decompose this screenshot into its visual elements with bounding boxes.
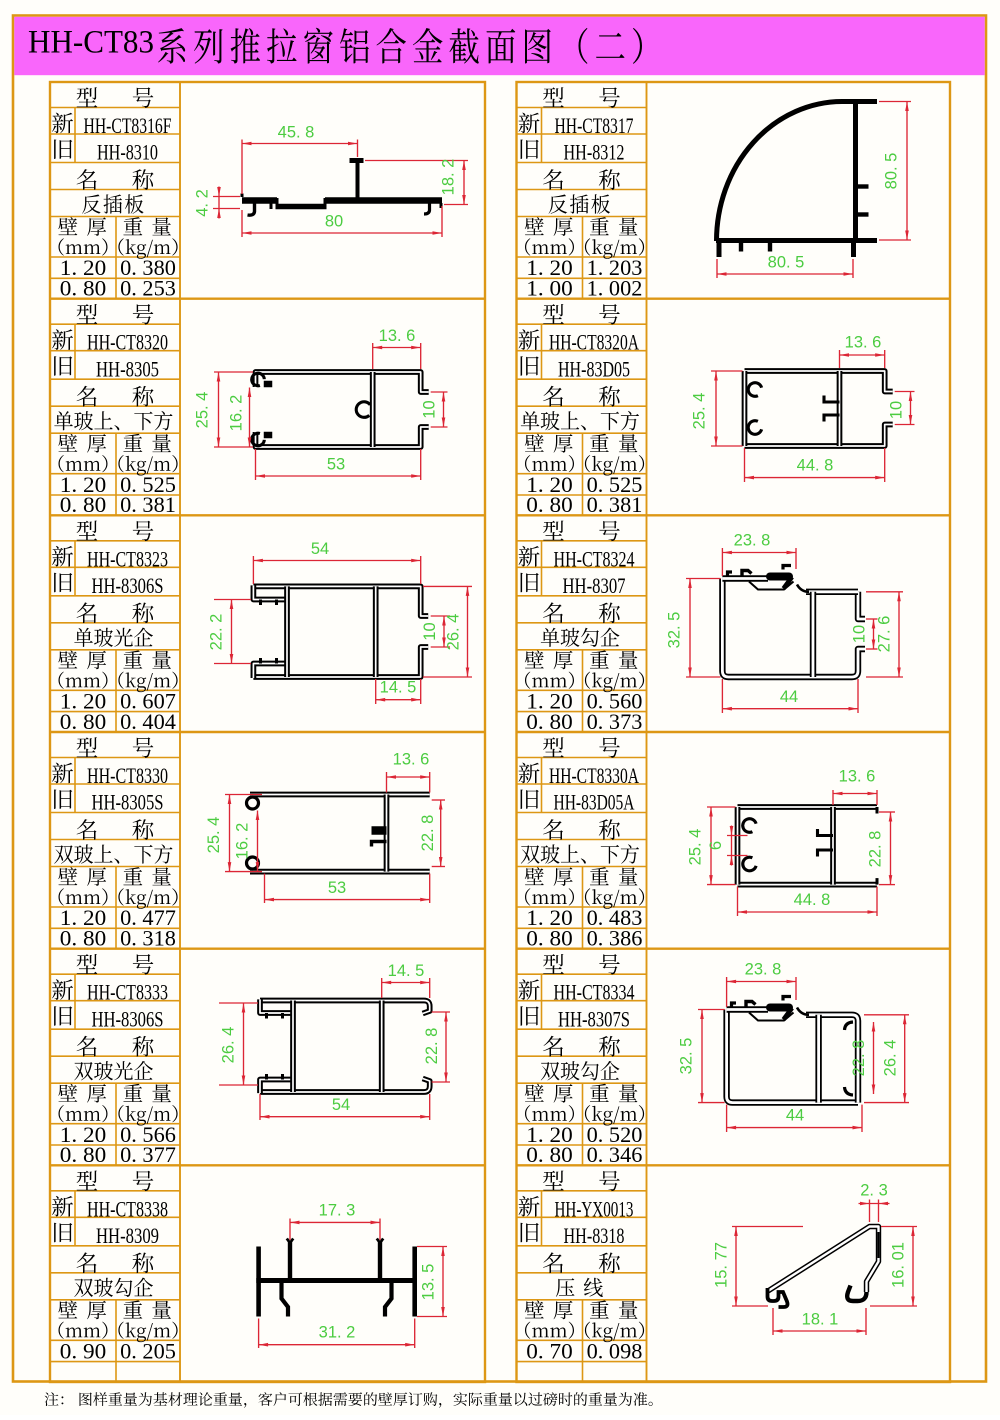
svg-text:23. 8: 23. 8 bbox=[734, 532, 771, 550]
svg-text:0. 80: 0. 80 bbox=[60, 926, 107, 951]
svg-text:10: 10 bbox=[421, 622, 439, 640]
svg-text:80. 5: 80. 5 bbox=[883, 153, 901, 190]
svg-text:HH-CT8334: HH-CT8334 bbox=[554, 980, 635, 1005]
svg-text:HH-8310: HH-8310 bbox=[97, 140, 158, 165]
svg-text:25. 4: 25. 4 bbox=[687, 829, 705, 866]
svg-text:10: 10 bbox=[888, 401, 906, 419]
svg-text:22. 8: 22. 8 bbox=[423, 1028, 441, 1065]
svg-text:0. 373: 0. 373 bbox=[587, 709, 643, 734]
svg-text:23. 8: 23. 8 bbox=[745, 961, 782, 979]
svg-text:22. 8: 22. 8 bbox=[419, 815, 437, 852]
svg-text:HH-8306S: HH-8306S bbox=[92, 573, 164, 598]
svg-text:HH-CT8320: HH-CT8320 bbox=[87, 330, 168, 355]
svg-text:32. 5: 32. 5 bbox=[678, 1038, 696, 1075]
svg-text:18. 1: 18. 1 bbox=[802, 1311, 839, 1329]
svg-text:0. 404: 0. 404 bbox=[120, 709, 176, 734]
svg-text:45. 8: 45. 8 bbox=[278, 124, 315, 142]
svg-text:HH-CT8330A: HH-CT8330A bbox=[549, 763, 639, 788]
svg-text:0. 80: 0. 80 bbox=[60, 709, 107, 734]
svg-text:44. 8: 44. 8 bbox=[794, 891, 831, 909]
svg-text:0. 098: 0. 098 bbox=[587, 1338, 643, 1363]
svg-text:1. 002: 1. 002 bbox=[587, 276, 643, 301]
svg-text:HH-83D05A: HH-83D05A bbox=[554, 790, 635, 815]
svg-text:14. 5: 14. 5 bbox=[380, 679, 417, 697]
svg-text:16. 2: 16. 2 bbox=[234, 823, 252, 860]
svg-text:HH-8306S: HH-8306S bbox=[92, 1006, 164, 1031]
svg-text:53: 53 bbox=[327, 456, 345, 474]
svg-text:6: 6 bbox=[707, 841, 725, 850]
svg-text:44: 44 bbox=[780, 688, 798, 706]
svg-text:18. 2: 18. 2 bbox=[440, 159, 458, 196]
svg-text:HH-YX0013: HH-YX0013 bbox=[555, 1196, 634, 1221]
svg-text:25. 4: 25. 4 bbox=[205, 817, 223, 854]
svg-text:80. 5: 80. 5 bbox=[768, 254, 805, 272]
svg-text:54: 54 bbox=[332, 1096, 350, 1114]
svg-text:0. 253: 0. 253 bbox=[120, 276, 176, 301]
svg-text:HH-CT8317: HH-CT8317 bbox=[555, 113, 634, 138]
svg-text:54: 54 bbox=[311, 540, 329, 558]
svg-text:HH-8305S: HH-8305S bbox=[92, 790, 164, 815]
svg-text:HH-8305: HH-8305 bbox=[96, 356, 159, 381]
svg-text:0. 80: 0. 80 bbox=[526, 926, 573, 951]
svg-text:27. 6: 27. 6 bbox=[876, 616, 894, 653]
svg-text:0. 80: 0. 80 bbox=[526, 709, 573, 734]
svg-text:26. 4: 26. 4 bbox=[882, 1040, 900, 1077]
svg-text:HH-CT83: HH-CT83 bbox=[28, 25, 154, 61]
svg-text:HH-CT8316F: HH-CT8316F bbox=[84, 113, 172, 138]
svg-text:0. 205: 0. 205 bbox=[120, 1338, 176, 1363]
svg-text:0. 381: 0. 381 bbox=[587, 492, 643, 517]
svg-text:44. 8: 44. 8 bbox=[797, 457, 834, 475]
svg-text:17. 3: 17. 3 bbox=[319, 1202, 356, 1220]
svg-text:0. 80: 0. 80 bbox=[526, 1142, 573, 1167]
svg-text:0. 80: 0. 80 bbox=[60, 276, 107, 301]
svg-text:0. 80: 0. 80 bbox=[60, 1142, 107, 1167]
svg-text:14. 5: 14. 5 bbox=[388, 962, 425, 980]
svg-text:0. 80: 0. 80 bbox=[526, 492, 573, 517]
svg-text:HH-CT8324: HH-CT8324 bbox=[554, 546, 635, 571]
svg-text:HH-8307S: HH-8307S bbox=[558, 1006, 630, 1031]
svg-text:32. 5: 32. 5 bbox=[666, 612, 684, 649]
svg-text:0. 90: 0. 90 bbox=[60, 1338, 107, 1363]
svg-text:80: 80 bbox=[325, 213, 343, 231]
svg-text:13. 6: 13. 6 bbox=[839, 768, 876, 786]
svg-text:22. 8: 22. 8 bbox=[850, 1040, 868, 1077]
svg-text:10: 10 bbox=[851, 625, 869, 643]
svg-text:16. 01: 16. 01 bbox=[890, 1242, 908, 1288]
svg-text:HH-8307: HH-8307 bbox=[563, 573, 626, 598]
svg-text:HH-8309: HH-8309 bbox=[96, 1223, 159, 1248]
svg-text:25. 4: 25. 4 bbox=[194, 392, 212, 429]
svg-text:16. 2: 16. 2 bbox=[228, 395, 246, 432]
svg-text:HH-CT8338: HH-CT8338 bbox=[87, 1196, 168, 1221]
svg-text:4. 2: 4. 2 bbox=[194, 189, 212, 217]
svg-text:0. 318: 0. 318 bbox=[120, 926, 176, 951]
svg-text:0. 70: 0. 70 bbox=[526, 1338, 573, 1363]
svg-text:HH-CT8333: HH-CT8333 bbox=[87, 980, 168, 1005]
svg-text:0. 386: 0. 386 bbox=[587, 926, 643, 951]
svg-text:HH-CT8323: HH-CT8323 bbox=[87, 546, 168, 571]
svg-text:13. 5: 13. 5 bbox=[420, 1264, 438, 1301]
svg-text:13. 6: 13. 6 bbox=[379, 327, 416, 345]
svg-text:HH-8318: HH-8318 bbox=[564, 1223, 625, 1248]
svg-text:0. 381: 0. 381 bbox=[120, 492, 176, 517]
svg-text:HH-CT8320A: HH-CT8320A bbox=[549, 330, 639, 355]
svg-text:HH-CT8330: HH-CT8330 bbox=[87, 763, 168, 788]
svg-text:HH-83D05: HH-83D05 bbox=[558, 356, 630, 381]
svg-text:1. 00: 1. 00 bbox=[526, 276, 573, 301]
svg-text:15. 77: 15. 77 bbox=[713, 1242, 731, 1288]
svg-text:0. 377: 0. 377 bbox=[120, 1142, 176, 1167]
svg-text:25. 4: 25. 4 bbox=[691, 393, 709, 430]
svg-text:44: 44 bbox=[786, 1107, 804, 1125]
svg-text:HH-8312: HH-8312 bbox=[564, 140, 625, 165]
svg-text:13. 6: 13. 6 bbox=[845, 334, 882, 352]
svg-text:2. 3: 2. 3 bbox=[860, 1182, 888, 1200]
svg-text:10: 10 bbox=[421, 400, 439, 418]
svg-text:53: 53 bbox=[328, 879, 346, 897]
svg-text:31. 2: 31. 2 bbox=[319, 1324, 356, 1342]
svg-text:26. 4: 26. 4 bbox=[220, 1027, 238, 1064]
svg-text:22. 8: 22. 8 bbox=[867, 831, 885, 868]
svg-text:26. 4: 26. 4 bbox=[445, 614, 463, 651]
svg-text:13. 6: 13. 6 bbox=[393, 751, 430, 769]
svg-text:0. 80: 0. 80 bbox=[60, 492, 107, 517]
svg-text:0. 346: 0. 346 bbox=[587, 1142, 643, 1167]
svg-text:22. 2: 22. 2 bbox=[208, 614, 226, 651]
